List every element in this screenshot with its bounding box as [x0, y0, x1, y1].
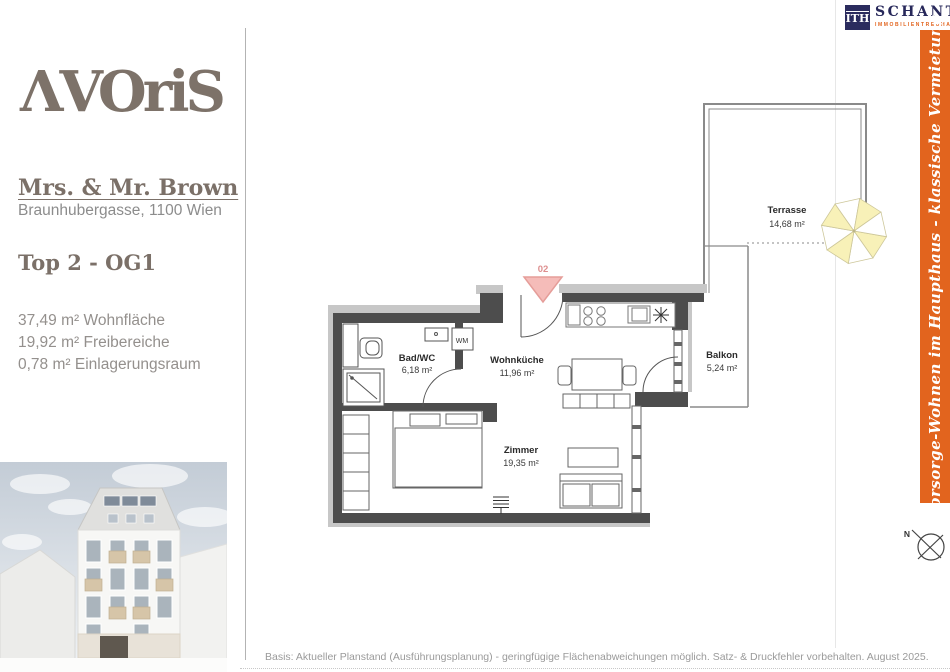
dining-set	[558, 359, 636, 390]
room-window	[632, 406, 641, 513]
main-building	[78, 488, 180, 658]
area-line-freibereiche: 19,92 m² Freibereiche	[18, 332, 201, 354]
compass-icon	[912, 530, 944, 560]
ith-logo-text: ITH	[846, 11, 870, 24]
parasol-icon	[822, 199, 887, 264]
room-label-bad: Bad/WC	[399, 353, 436, 364]
unit-label: Top 2 - OG1	[18, 250, 156, 275]
balcony-door-window	[674, 330, 682, 392]
unit-number-label: 02	[538, 264, 549, 275]
room-area-terrasse: 14,68 m²	[769, 219, 805, 229]
ground	[0, 658, 227, 672]
footer-disclaimer: Basis: Aktueller Planstand (Ausführungsp…	[265, 651, 929, 663]
marketing-banner: Vorsorge-Wohnen im Haupthaus - klassisch…	[920, 30, 950, 503]
footer-rule	[240, 668, 950, 669]
room-label-wohnkueche: Wohnküche	[490, 355, 544, 366]
client-name: Mrs. & Mr. Brown	[18, 175, 238, 201]
room-label-balkon: Balkon	[706, 350, 738, 361]
room-label-terrasse: Terrasse	[768, 205, 807, 216]
fridge-snowflake-icon	[653, 307, 669, 323]
client-address: Braunhubergasse, 1100 Wien	[18, 202, 222, 220]
room-area-wohnkueche: 11,96 m²	[500, 368, 535, 378]
area-line-wohnflaeche: 37,49 m² Wohnfläche	[18, 310, 201, 332]
brochure-page: ΛVOriS Mrs. & Mr. Brown Braunhubergasse,…	[0, 0, 950, 672]
bedroom-furniture	[343, 411, 622, 510]
entrance-marker-triangle	[524, 277, 562, 302]
building-rendering	[0, 462, 227, 672]
ith-logo-mark: ITH	[845, 5, 870, 30]
room-area-zimmer: 19,35 m²	[503, 458, 539, 468]
washing-machine-label: WM	[456, 338, 469, 345]
avoris-logo: ΛVOriS	[20, 64, 222, 120]
area-summary: 37,49 m² Wohnfläche 19,92 m² Freibereich…	[18, 310, 201, 376]
compass-north-label: N	[904, 529, 910, 539]
room-area-bad: 6,18 m²	[402, 365, 433, 375]
area-line-einlagerungsraum: 0,78 m² Einlagerungsraum	[18, 354, 201, 376]
garage-opening	[100, 636, 128, 658]
room-area-balkon: 5,24 m²	[707, 363, 738, 373]
sidebar-divider	[245, 28, 246, 660]
marketing-banner-text: Vorsorge-Wohnen im Haupthaus - klassisch…	[926, 14, 944, 518]
room-label-zimmer: Zimmer	[504, 445, 539, 456]
neighbor-building-right	[180, 544, 227, 667]
radiator-icon	[493, 497, 509, 514]
kitchen-cabinet-row	[563, 394, 630, 408]
floor-plan: WM 02 Bad/WC 6,18 m² Wohn	[325, 95, 950, 570]
